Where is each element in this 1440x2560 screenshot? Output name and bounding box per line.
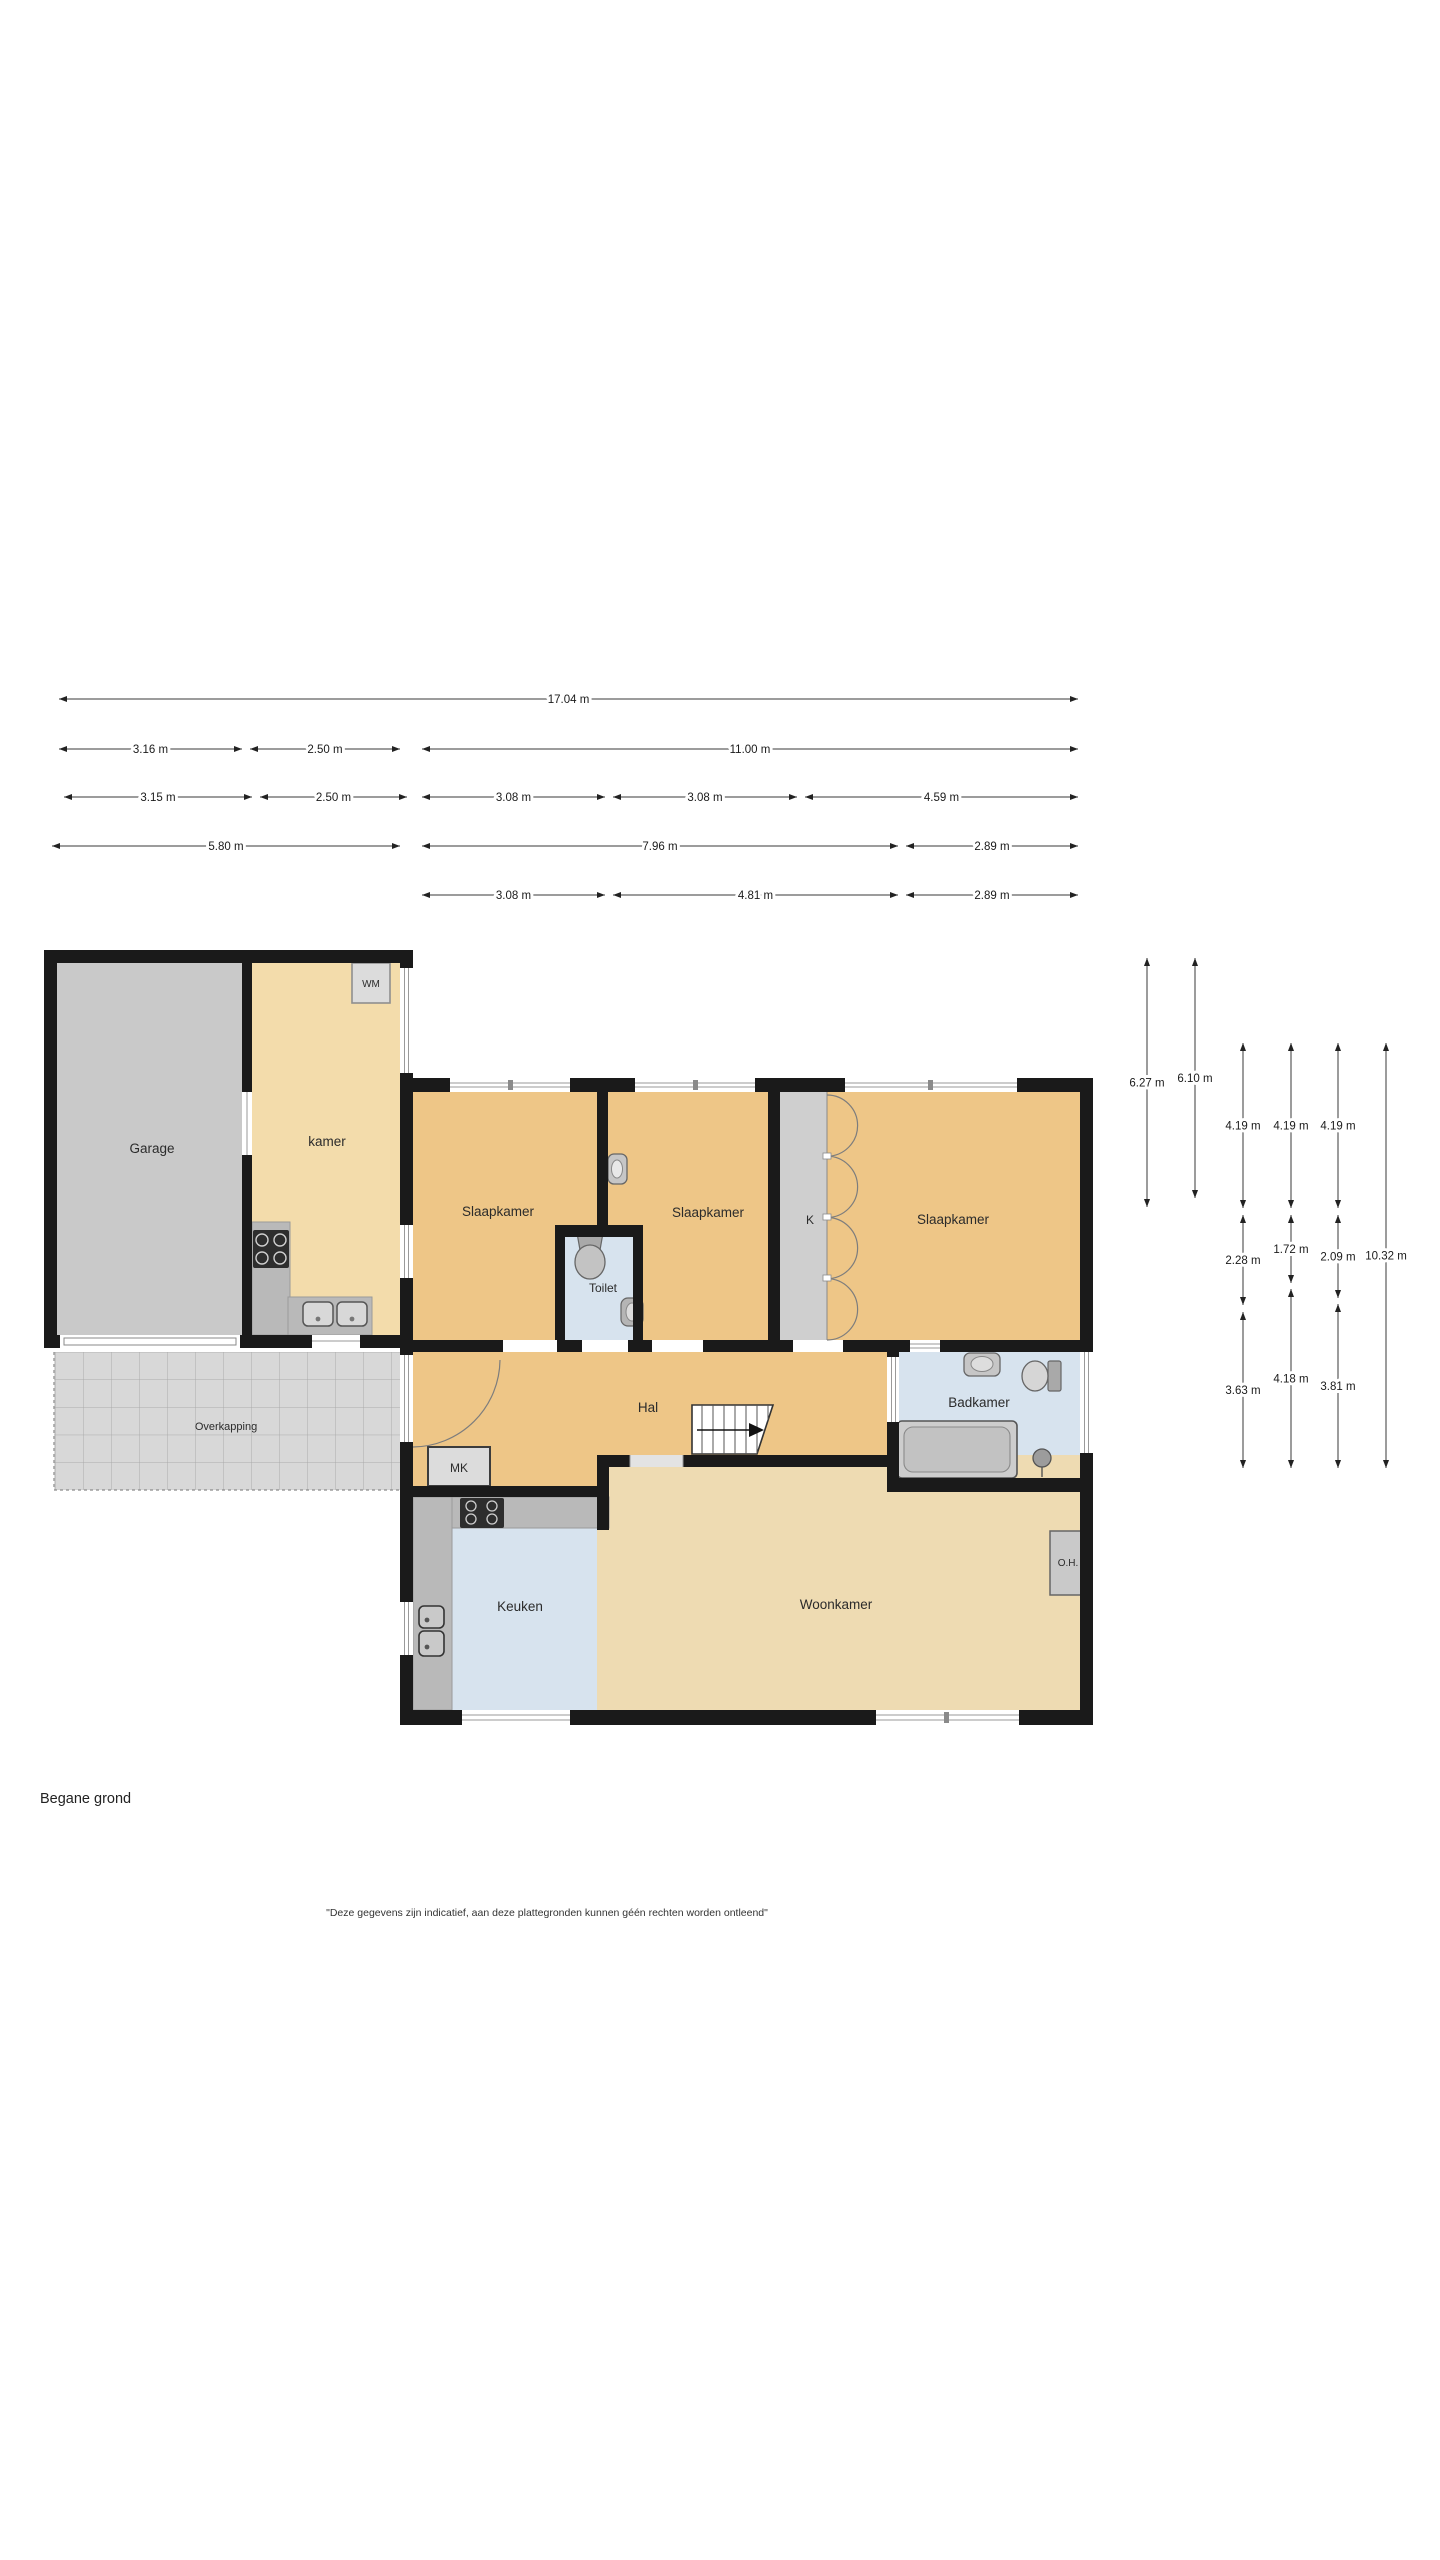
garage-kamer-door [242,1092,252,1155]
dimension-label: 2.89 m [974,890,1009,902]
keuken-floor [452,1528,597,1710]
dimension-label: 2.09 m [1320,1252,1355,1264]
wall-keuken-top [413,1486,609,1497]
keuken-bottom-window [462,1710,570,1725]
badkamer-window [1080,1352,1093,1453]
badkamer-washbasin-icon [964,1353,1000,1376]
slaapkamer-rechts-window [845,1078,1017,1092]
kamer-label: kamer [308,1134,346,1149]
slaapkamer-links-window [450,1078,570,1092]
dimension-label: 4.81 m [738,890,773,902]
badkamer-door [887,1357,899,1422]
bathtub-icon [897,1421,1017,1478]
slaapkamer-washbasin-icon [608,1154,627,1184]
wall-slaapkamer1-2 [597,1092,608,1225]
woonkamer-label: Woonkamer [800,1597,873,1612]
wall-garage-top [44,950,413,963]
overkapping-label: Overkapping [195,1421,257,1433]
kamer-slaapkamer-window [400,1225,413,1278]
dimension-label: 3.08 m [496,890,531,902]
woonkamer-floor [597,1455,1080,1710]
slaapkamer-midden-label: Slaapkamer [672,1205,745,1220]
keuken-side-window [400,1602,413,1655]
dimension-label: 17.04 m [548,694,590,706]
disclaimer-text: "Deze gegevens zijn indicatief, aan deze… [326,1907,768,1919]
dimension-label: 4.19 m [1320,1121,1355,1133]
wall-toilet-right [633,1237,643,1340]
dimension-label: 7.96 m [642,841,677,853]
oh-label: O.H. [1058,1558,1079,1569]
dimension-label: 3.08 m [687,792,722,804]
hal-woonkamer-door [630,1455,683,1467]
badkamer-label: Badkamer [948,1395,1010,1410]
mk-label: MK [450,1461,468,1475]
kamer-cooktop-icon [253,1230,289,1268]
dimension-label: 3.15 m [140,792,175,804]
floorplan-page: 17.04 m3.16 m2.50 m11.00 m3.15 m2.50 m3.… [0,0,1440,2560]
toilet-door [582,1340,628,1352]
wall-toilet-left [555,1237,565,1340]
keuken-label: Keuken [497,1599,543,1614]
dimension-label: 4.18 m [1273,1374,1308,1386]
toilet-label: Toilet [589,1281,618,1295]
dimension-label: 11.00 m [730,744,771,756]
slaapkamer-links-label: Slaapkamer [462,1204,535,1219]
dimension-label: 3.63 m [1225,1385,1260,1397]
keuken-sink-icon [419,1606,444,1656]
kast-floor [780,1092,827,1340]
wall-badkamer-bottom [887,1478,1093,1492]
dimension-label: 2.28 m [1225,1255,1260,1267]
floorplan-drawing: 17.04 m3.16 m2.50 m11.00 m3.15 m2.50 m3.… [0,0,1440,2560]
kamer-east-window [400,968,413,1073]
wall-garage-left [44,950,57,1348]
hal-label: Hal [638,1400,658,1415]
garage-label: Garage [129,1141,174,1156]
slaapkamer-midden-door [652,1340,703,1352]
dimension-label: 4.59 m [924,792,959,804]
slaapkamer-links-door [503,1340,557,1352]
badkamer-wc-icon [1022,1361,1061,1391]
kamer-back-door [312,1335,360,1348]
dimension-label: 6.10 m [1177,1073,1212,1085]
kast-label: K [806,1213,814,1227]
slaapkamer-rechts-door [793,1340,843,1352]
dimension-label: 4.19 m [1273,1121,1308,1133]
floor-title: Begane grond [40,1791,131,1807]
keuken-cooktop-icon [460,1498,504,1528]
dimension-label: 3.81 m [1320,1381,1355,1393]
slaapkamer-rechts-label: Slaapkamer [917,1212,990,1227]
wall-toilet-top [555,1225,643,1237]
dimension-label: 2.50 m [316,792,351,804]
dimension-label: 2.89 m [974,841,1009,853]
keuken-counter-left [413,1497,452,1710]
dimension-label: 4.19 m [1225,1121,1260,1133]
dimension-label: 6.27 m [1129,1078,1164,1090]
dimension-label: 1.72 m [1273,1244,1308,1256]
wall-slaapkamer2-kast [768,1092,780,1340]
dimension-label: 2.50 m [307,744,342,756]
woonkamer-bottom-window [876,1710,1019,1725]
dimension-label: 5.80 m [208,841,243,853]
badkamer-top-window [910,1340,940,1352]
dimension-label: 10.32 m [1365,1251,1407,1263]
garage-door [60,1335,240,1348]
slaapkamer-midden-window [635,1078,755,1092]
dimension-label: 3.16 m [133,744,168,756]
dimension-label: 3.08 m [496,792,531,804]
wm-label: WM [362,979,380,990]
toilet-wc-icon [575,1233,605,1279]
